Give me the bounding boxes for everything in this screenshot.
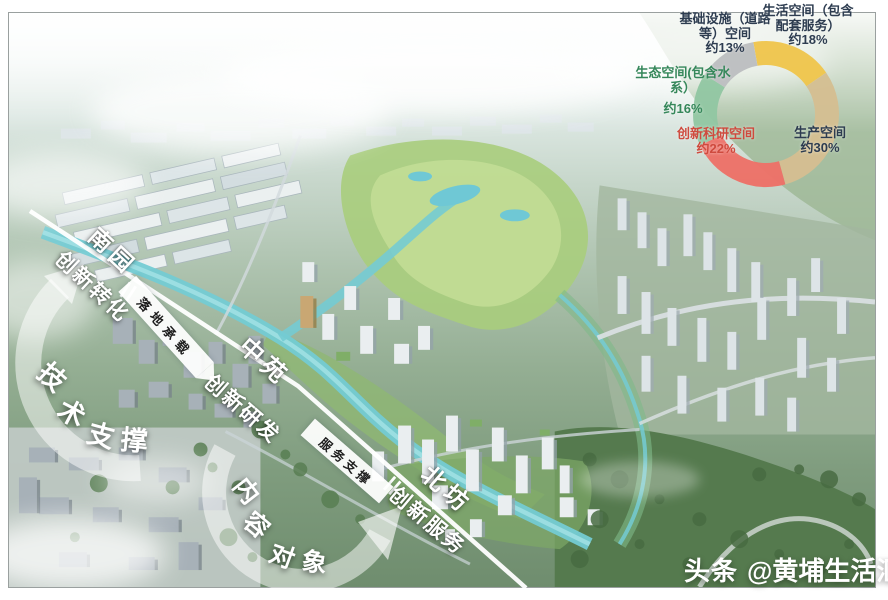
planning-rendering-page: 南园 中苑 北坊 创新转化 创新研发 创新服务 落地承载 服务支撑 技术支撑 内… xyxy=(0,0,888,600)
aerial-photo xyxy=(8,12,876,588)
scene-illustration xyxy=(9,13,875,587)
